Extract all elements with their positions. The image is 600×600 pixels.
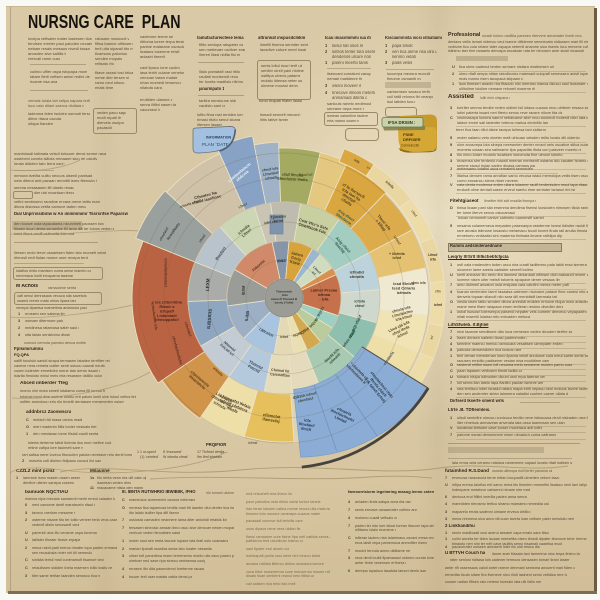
svg-text:IFSA DRXIIN :: IFSA DRXIIN :: [388, 120, 415, 125]
